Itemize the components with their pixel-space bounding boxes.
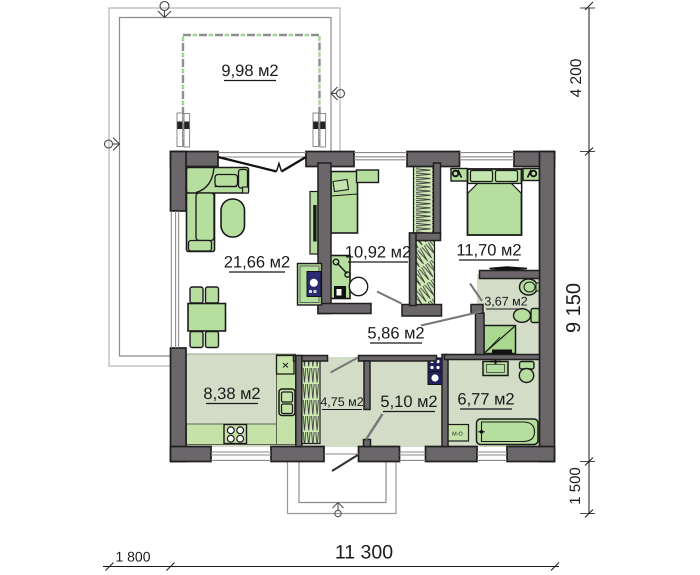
- svg-text:10,92 м2: 10,92 м2: [345, 244, 411, 262]
- svg-text:11 300: 11 300: [335, 542, 393, 564]
- svg-text:1 800: 1 800: [115, 549, 150, 565]
- svg-text:4,75 м2: 4,75 м2: [320, 395, 363, 409]
- svg-text:3,67 м2: 3,67 м2: [484, 295, 527, 309]
- svg-text:11,70 м2: 11,70 м2: [456, 242, 521, 260]
- svg-text:М-О: М-О: [452, 432, 463, 438]
- svg-text:9,98 м2: 9,98 м2: [221, 62, 278, 80]
- svg-text:8,38 м2: 8,38 м2: [203, 385, 260, 403]
- svg-text:1 500: 1 500: [567, 467, 584, 505]
- svg-text:5,86 м2: 5,86 м2: [367, 325, 424, 343]
- svg-text:6,77 м2: 6,77 м2: [457, 391, 514, 409]
- svg-text:4 200: 4 200: [568, 58, 585, 97]
- svg-text:9 150: 9 150: [563, 283, 585, 333]
- svg-text:5,10 м2: 5,10 м2: [380, 393, 437, 411]
- svg-text:21,66 м2: 21,66 м2: [224, 254, 290, 272]
